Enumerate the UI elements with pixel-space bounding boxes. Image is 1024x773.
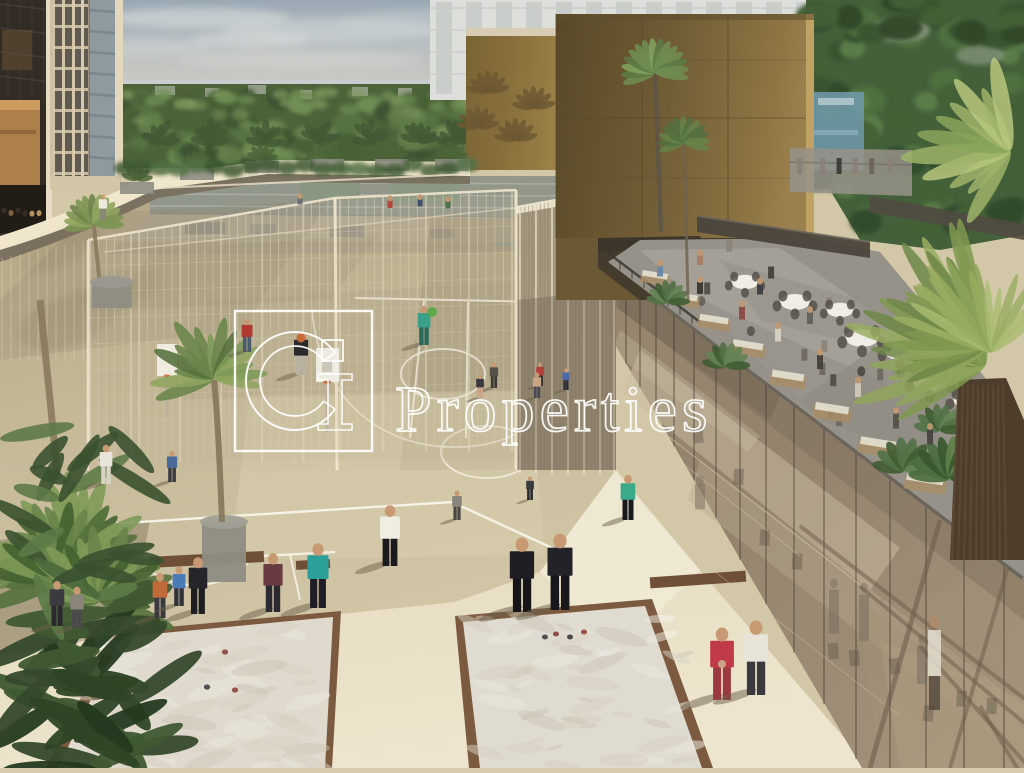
svg-text:Properties: Properties [395, 373, 713, 446]
